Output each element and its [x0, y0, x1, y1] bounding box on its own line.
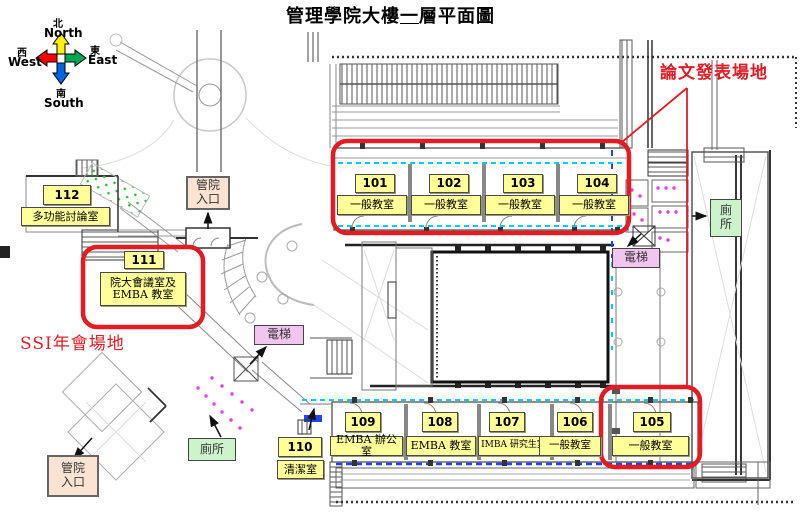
- room-109-name: EMBA 辦公室: [330, 436, 403, 456]
- entrance-top-line2: 入口: [196, 193, 220, 207]
- room-112-number: 112: [43, 185, 91, 205]
- entrance-bottom-line1: 管院: [61, 462, 85, 476]
- elevator-label-right: 電梯: [612, 248, 660, 268]
- room-111-number: 111: [124, 251, 164, 269]
- title-underlined-char: 一: [400, 6, 419, 27]
- entrance-top-line1: 管院: [196, 179, 220, 193]
- room-103-name: 一般教室: [485, 195, 555, 215]
- room-108-number: 108: [422, 412, 458, 432]
- toilet-label-right: 廁 所: [710, 199, 742, 237]
- title-part2: 層平面圖: [419, 6, 495, 27]
- room-102-number: 102: [429, 174, 469, 193]
- toilet-right-line2: 所: [720, 218, 732, 232]
- room-105-number: 105: [633, 412, 671, 432]
- room-105-name: 一般教室: [612, 436, 689, 456]
- entrance-label-bottom: 管院 入口: [47, 455, 99, 497]
- room-106-number: 106: [557, 412, 593, 432]
- room-104-name: 一般教室: [559, 195, 629, 215]
- room-110-name: 清潔室: [277, 460, 324, 479]
- entrance-label-top: 管院 入口: [186, 176, 230, 210]
- entrance-bottom-line2: 入口: [61, 476, 85, 490]
- annotation-ssi-venue: SSI年會場地: [20, 329, 125, 354]
- compass-south-en: South: [44, 96, 84, 110]
- room-109-number: 109: [345, 412, 381, 432]
- room-111-name-line2: EMBA 教室: [113, 289, 174, 301]
- top-building: [330, 40, 797, 150]
- toilet-label-left: 廁所: [188, 438, 236, 461]
- compass-west-en: West: [8, 55, 42, 69]
- annotation-paper-venue: 論文發表場地: [660, 58, 768, 83]
- room-102-name: 一般教室: [411, 195, 481, 215]
- compass-east-en: East: [88, 53, 117, 67]
- room-101-number: 101: [355, 174, 395, 193]
- wc-fixtures: [196, 376, 253, 429]
- floor-plan: 管理學院大樓一層平面圖 北 North 西 West 東 East 南 Sout…: [0, 0, 800, 514]
- compass-north-en: North: [44, 26, 82, 40]
- room-111-name: 院大會議室及 EMBA 教室: [100, 272, 186, 306]
- atrium-corridors: [82, 30, 332, 172]
- room-112-name: 多功能討論室: [21, 207, 110, 226]
- room-101-name: 一般教室: [337, 195, 407, 215]
- toilet-right-line1: 廁: [720, 204, 732, 218]
- title-part1: 管理學院大樓: [286, 6, 400, 27]
- page-title: 管理學院大樓一層平面圖: [286, 2, 495, 28]
- room-103-number: 103: [503, 174, 543, 193]
- room-106-name: 一般教室: [539, 436, 601, 456]
- room-110-number: 110: [278, 437, 322, 457]
- room-108-name: EMBA 教室: [406, 436, 476, 456]
- elevator-label-center: 電梯: [254, 325, 304, 345]
- room-104-number: 104: [577, 174, 617, 193]
- room-107-number: 107: [489, 412, 525, 432]
- compass-arrows: [36, 33, 86, 84]
